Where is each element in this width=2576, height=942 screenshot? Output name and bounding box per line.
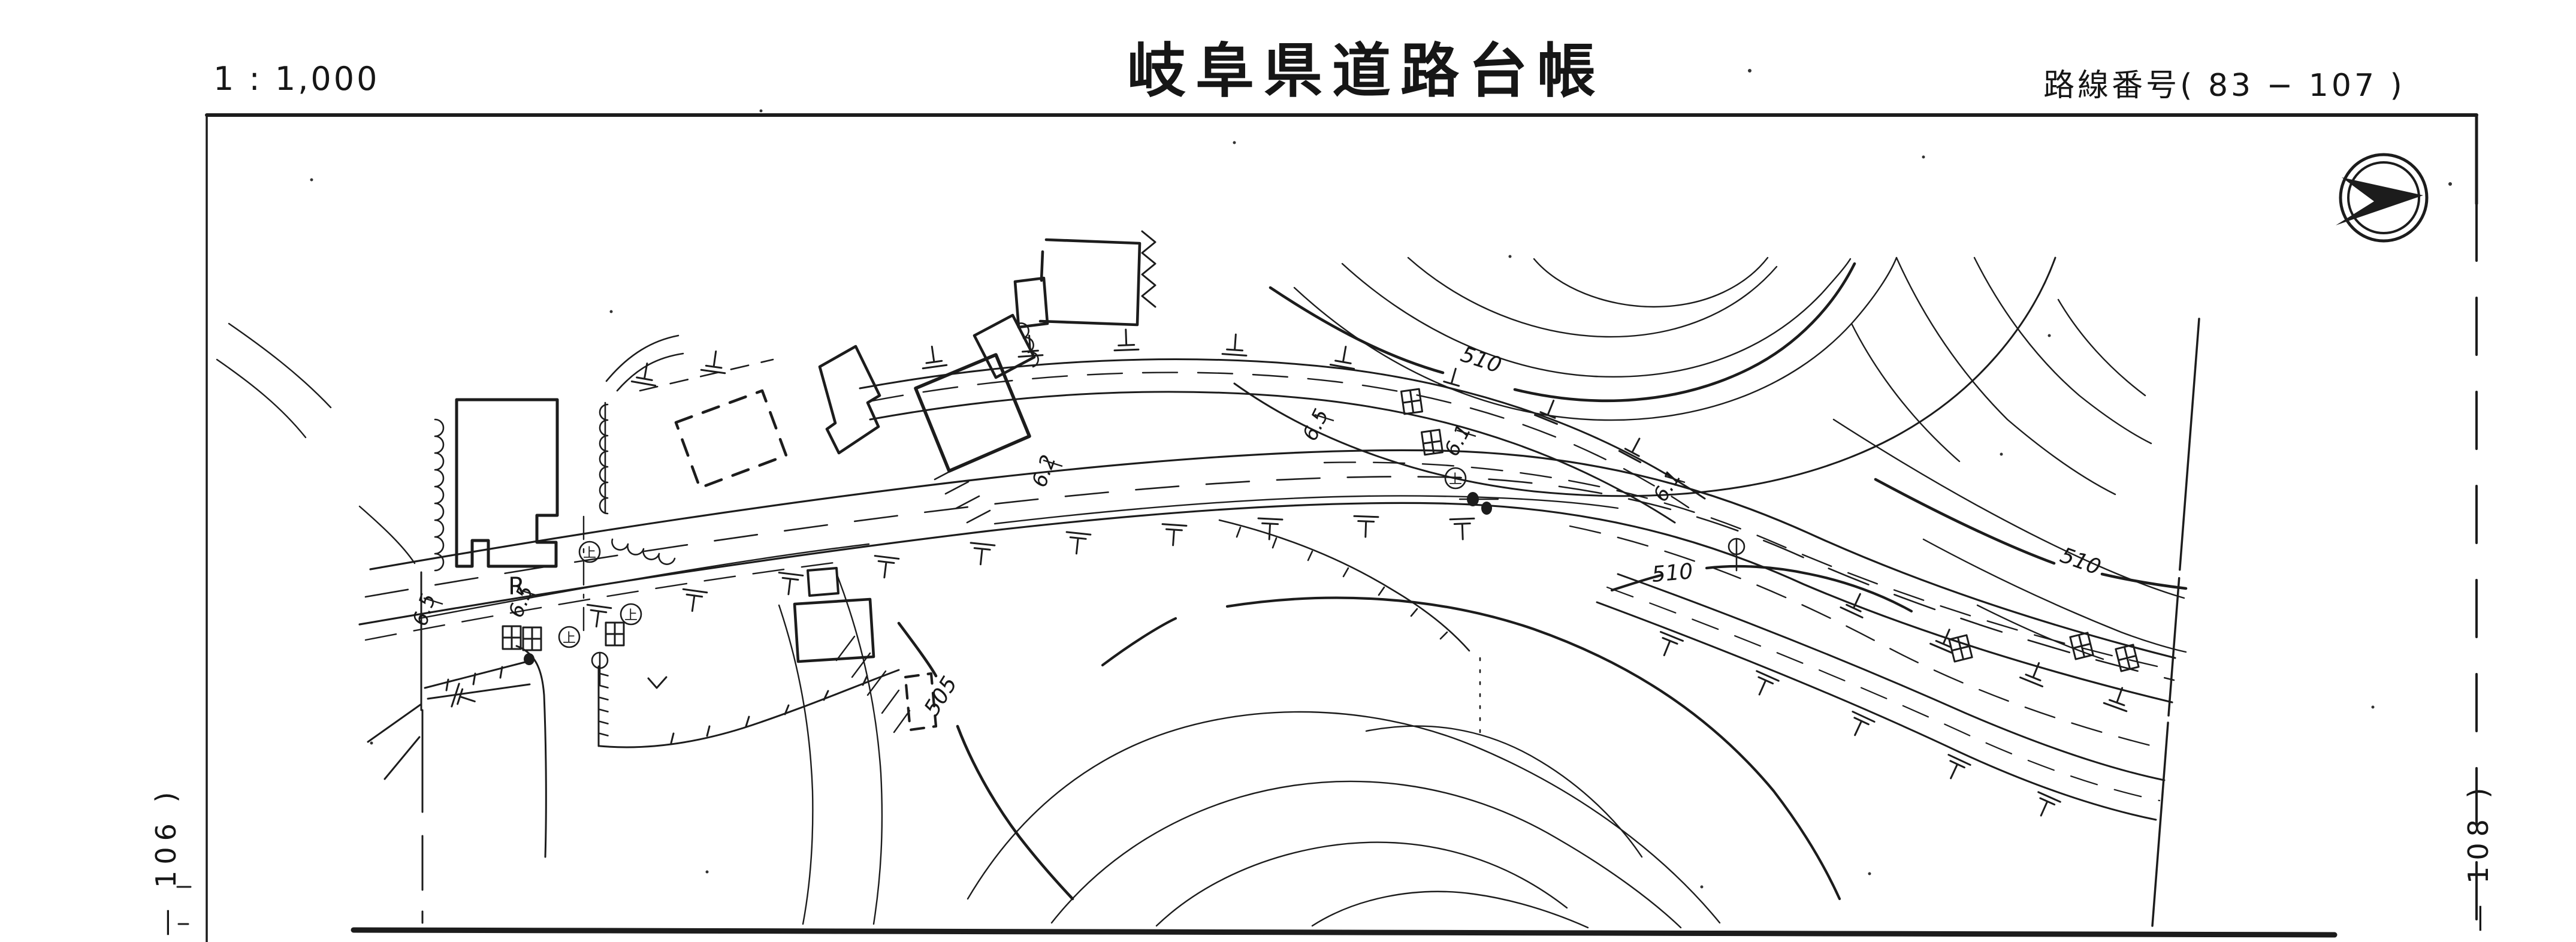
road-width-label: 6.1: [1648, 466, 1686, 506]
contour-label: 505: [920, 672, 962, 720]
pole-glyph: 上: [1449, 472, 1462, 487]
sheet-frame: [177, 115, 2477, 942]
driveway-arcs: [606, 336, 683, 391]
map-neatline: [2152, 319, 2199, 926]
contour-label: 510: [2057, 543, 2104, 580]
route-number-label: 路線番号( 83 − 107 ): [2043, 68, 2405, 104]
road-ledger-sheet: 1 : 1,000 岐阜県道路台帳 路線番号( 83 − 107 ) — 106…: [0, 0, 2576, 942]
road-width-label: 6.2: [1028, 452, 1061, 490]
scan-noise: [310, 69, 2453, 889]
upper-road: [860, 360, 1705, 523]
adjacent-sheet-right: — 108 ): [2462, 782, 2495, 932]
page-title: 岐阜県道路台帳: [1127, 37, 1605, 105]
map-canvas: 1 : 1,000 岐阜県道路台帳 路線番号( 83 − 107 ) — 106…: [0, 0, 2576, 942]
cross-road: [368, 517, 899, 923]
pole-symbols: [559, 468, 1744, 684]
scale-label: 1 : 1,000: [213, 60, 379, 98]
footpath-dashed: [640, 360, 773, 391]
pole-glyph: 上: [624, 608, 638, 623]
adjacent-sheet-left: — 106 ): [150, 786, 182, 937]
branch-road-lower: [1597, 574, 2164, 820]
pole-glyph: 上: [583, 546, 596, 561]
road-width-label: 6.1: [1440, 421, 1476, 461]
road-width-label: 6.5: [408, 591, 441, 629]
road-width-label: 6.5: [1298, 405, 1334, 445]
measure-ticks: [424, 415, 1685, 604]
curve-radius-label: R: [508, 573, 525, 600]
slope-ticks: [452, 329, 2134, 820]
north-arrow-icon: [2336, 155, 2427, 241]
contour-label: 510: [1458, 342, 1505, 378]
slope-edge: [1219, 520, 1480, 742]
contour-label: 510: [1651, 559, 1694, 587]
pole-glyph: 上: [563, 631, 576, 646]
manhole-dots: [524, 492, 1498, 665]
